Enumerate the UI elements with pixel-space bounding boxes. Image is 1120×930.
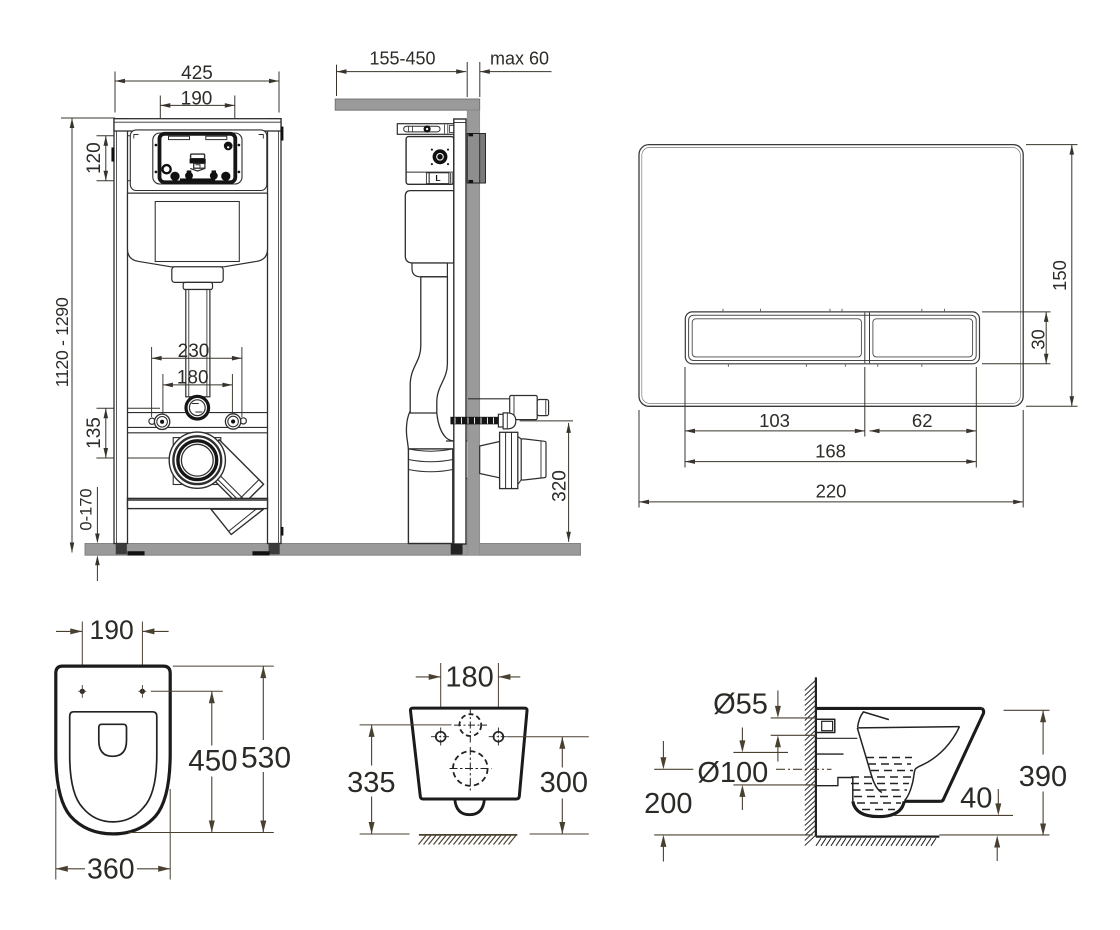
svg-text:220: 220 xyxy=(816,481,847,502)
svg-text:320: 320 xyxy=(549,470,570,502)
svg-text:Ø55: Ø55 xyxy=(713,689,768,721)
svg-text:190: 190 xyxy=(181,89,213,110)
svg-text:300: 300 xyxy=(540,767,588,799)
svg-text:max 60: max 60 xyxy=(490,49,549,69)
svg-text:450: 450 xyxy=(188,745,237,778)
svg-text:390: 390 xyxy=(1019,761,1067,793)
svg-text:190: 190 xyxy=(89,615,133,645)
svg-text:200: 200 xyxy=(644,788,692,820)
svg-text:0-170: 0-170 xyxy=(77,488,95,530)
svg-text:103: 103 xyxy=(759,410,790,431)
svg-text:335: 335 xyxy=(347,767,395,799)
svg-text:40: 40 xyxy=(960,783,992,815)
svg-text:1120 - 1290: 1120 - 1290 xyxy=(52,297,72,387)
svg-text:360: 360 xyxy=(87,854,135,886)
svg-text:30: 30 xyxy=(1028,329,1049,350)
svg-text:Ø100: Ø100 xyxy=(697,757,768,789)
svg-text:135: 135 xyxy=(84,417,105,449)
svg-text:230: 230 xyxy=(178,341,210,362)
svg-text:L: L xyxy=(435,173,440,183)
svg-text:180: 180 xyxy=(445,661,493,693)
svg-text:62: 62 xyxy=(912,410,933,431)
svg-text:180: 180 xyxy=(177,368,209,389)
svg-text:120: 120 xyxy=(84,142,105,174)
svg-text:155-450: 155-450 xyxy=(369,49,435,69)
svg-text:425: 425 xyxy=(181,63,213,84)
svg-text:530: 530 xyxy=(241,742,291,775)
svg-text:150: 150 xyxy=(1049,260,1070,291)
svg-text:168: 168 xyxy=(815,441,846,462)
